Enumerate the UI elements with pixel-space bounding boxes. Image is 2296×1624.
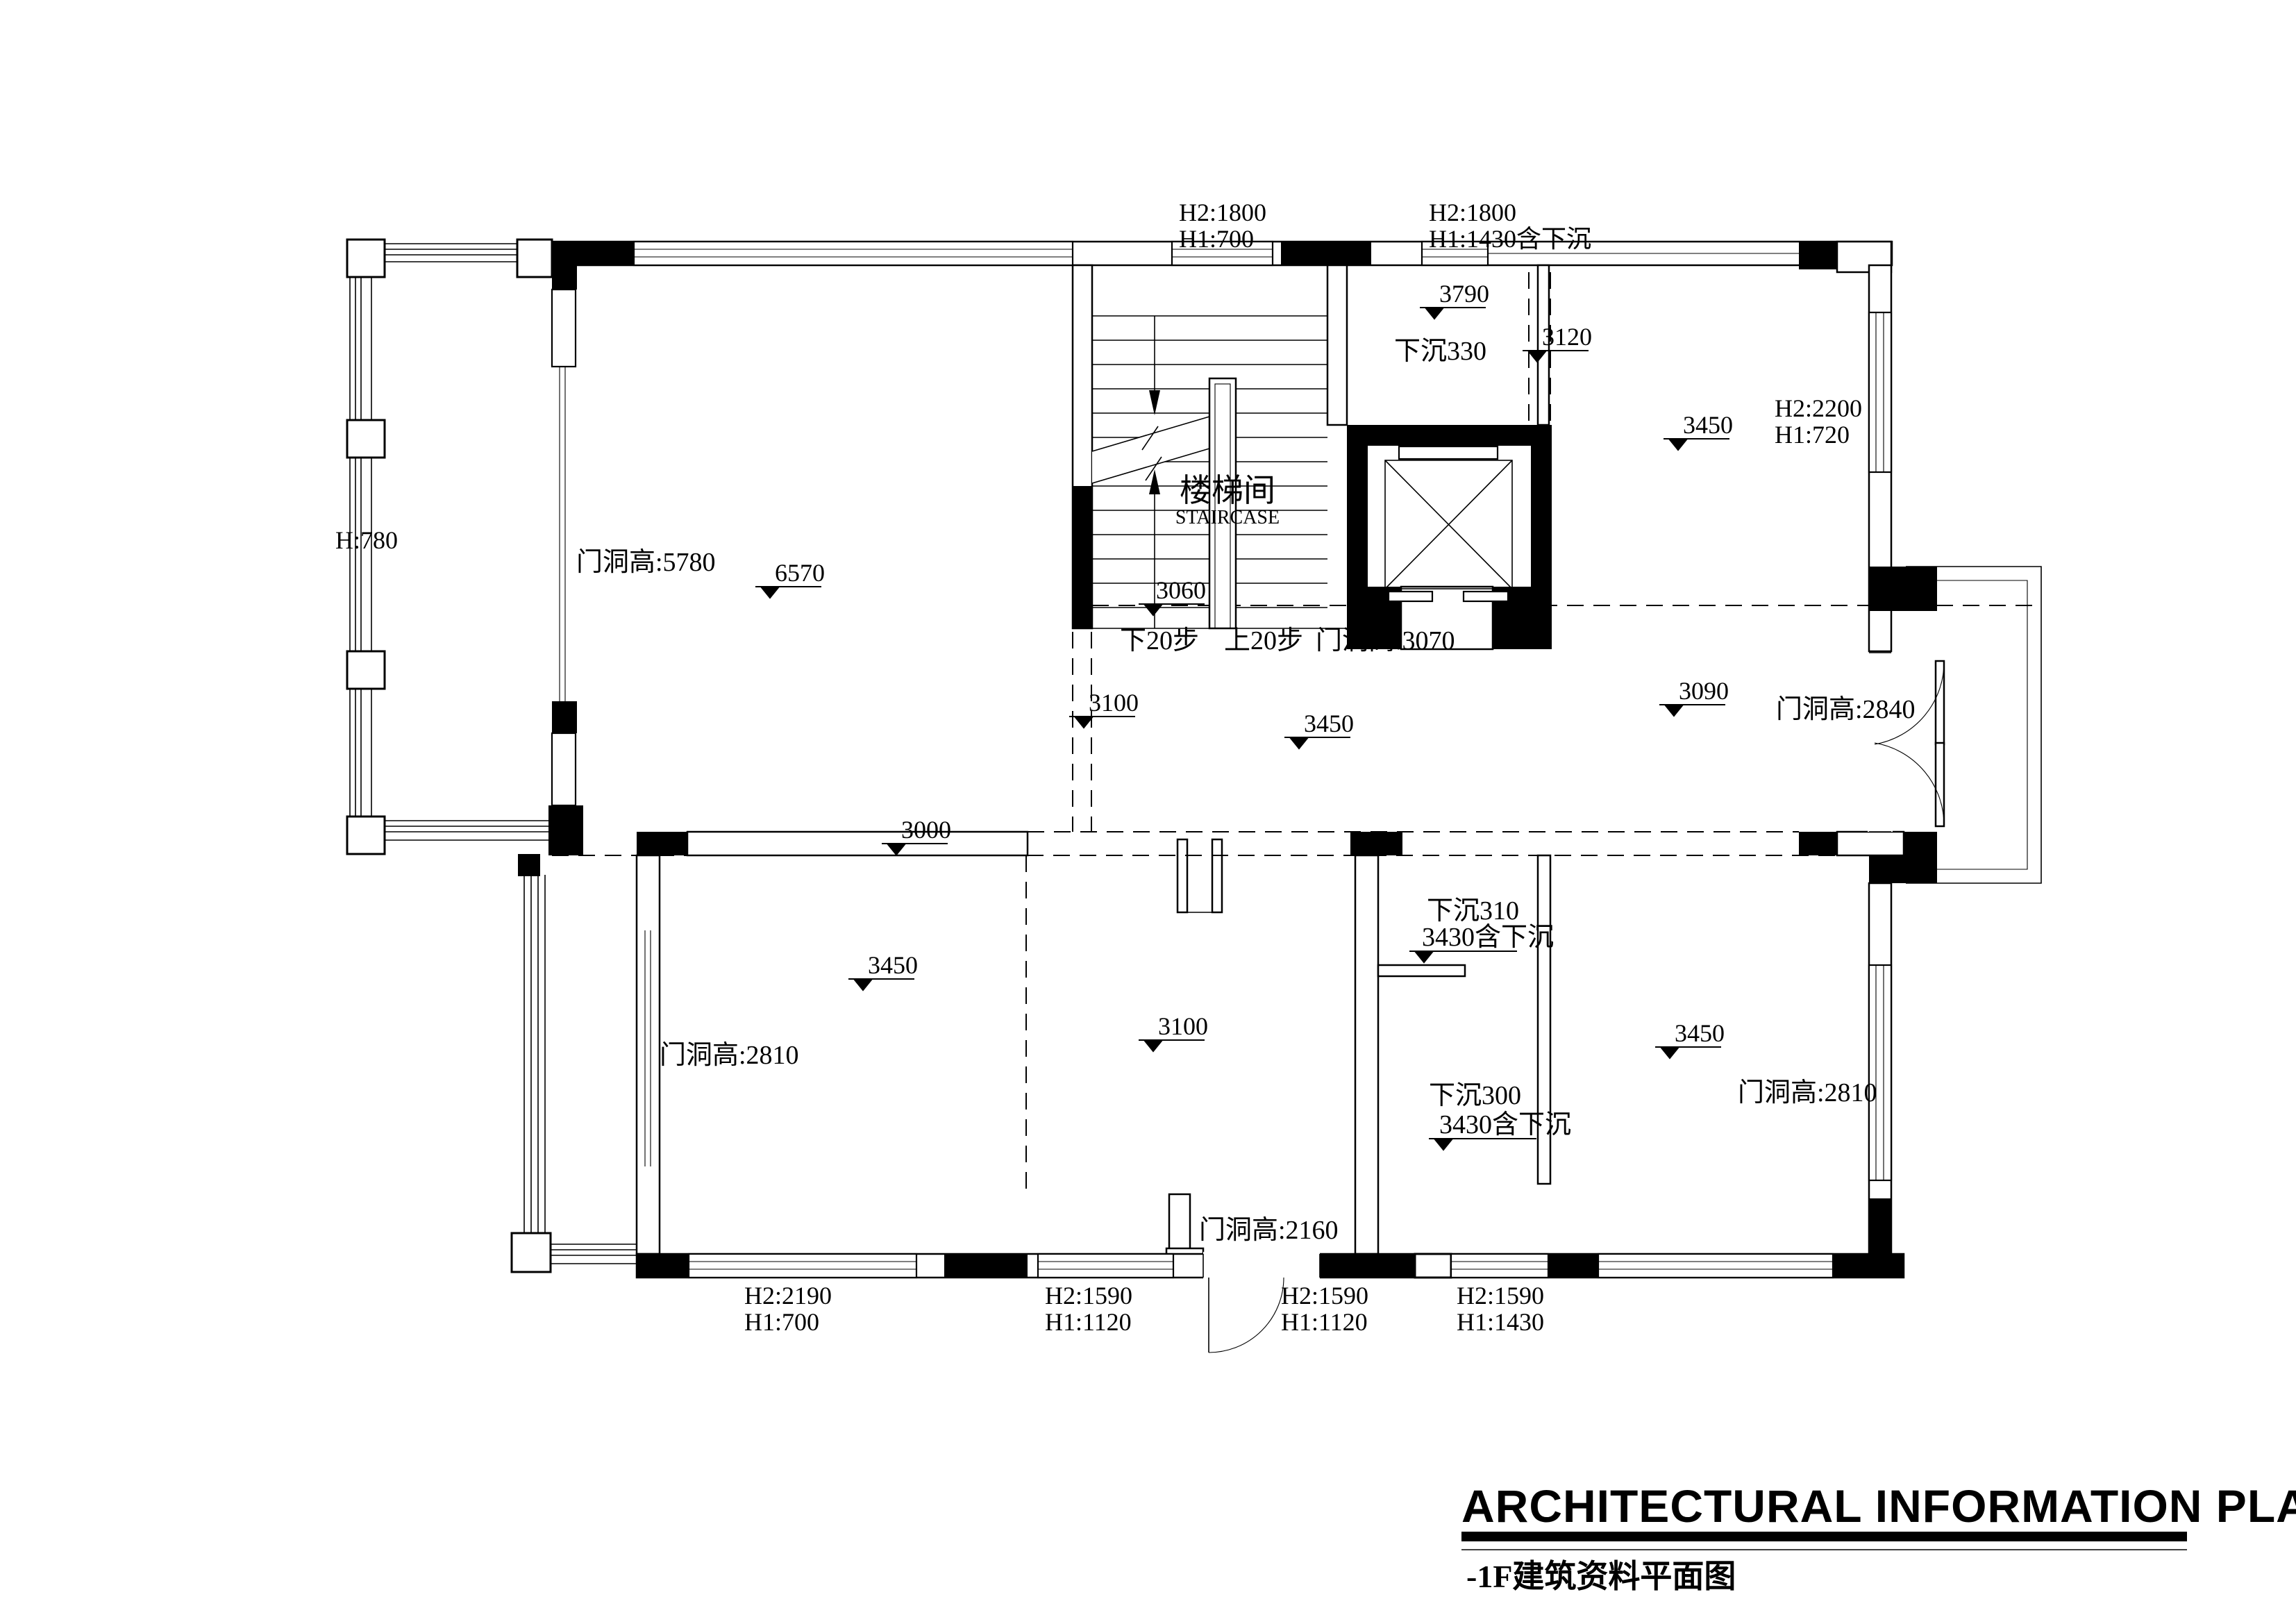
elevation-value: 3790 [1439,280,1489,308]
elevation-value: 3450 [1304,710,1354,737]
window-label: H2:2190 [744,1282,832,1309]
page-title: ARCHITECTURAL INFORMATION PLAN [1461,1480,2296,1532]
column [347,817,385,854]
window-label: H2:1590 [1457,1282,1544,1309]
window-label: H1:720 [1775,421,1850,449]
page-subtitle: -1F建筑资料平面图 [1466,1559,1736,1594]
window-label: H2:2200 [1775,394,1862,422]
doors [1209,661,1944,1353]
elevation-marker: 3100 [1139,1012,1208,1051]
column [347,240,385,277]
window-right-lower [1869,965,1891,1180]
window-label: H1:1120 [1281,1308,1368,1336]
elevation-marker: 3060 [1139,576,1206,615]
elevator [1347,425,1552,649]
elevation-value: 3090 [1679,677,1729,705]
window-label: H2:1800 [1429,199,1516,226]
elevation-value: 3100 [1089,689,1139,717]
walls [548,242,1937,1280]
staircase-name-en: STAIRCASE [1175,507,1280,528]
elevation-value: 3430含下沉 [1439,1110,1571,1139]
door-height-label: 门洞高:2810 [1738,1078,1877,1107]
window-label: H1:700 [1179,225,1254,253]
door-height-label: 门洞高:2810 [660,1041,799,1070]
window-label: H2:1800 [1179,199,1266,226]
sunken-label: 下沉310 [1427,896,1519,926]
sunken-label: 下沉330 [1394,337,1486,366]
elevator-car-icon [1385,460,1512,589]
window-label: H1:1120 [1045,1308,1132,1336]
door-height-label: 门洞高:5780 [576,548,716,577]
window-label: H1:1430 [1457,1308,1544,1336]
floor-plan-canvas: 3790 3120 3450 6570 3060 3100 3450 3090 [0,0,2296,1624]
elevation-value: 3120 [1542,323,1592,351]
elevation-marker: 3790 [1420,280,1489,319]
elevation-value: 3450 [1683,411,1733,439]
window-label: H2:1590 [1045,1282,1132,1309]
stairs-up-label: 上20步 [1224,626,1303,655]
column [347,420,385,458]
elevation-marker: 6570 [755,559,825,598]
elevation-value: 3450 [868,951,918,979]
window-bottom-3 [1451,1254,1548,1278]
windows [634,242,1891,1278]
window-right-upper [1869,312,1891,472]
elevation-marker: 3450 [1284,710,1354,748]
elevation-value: 6570 [775,559,825,587]
elevation-value: 3430含下沉 [1422,923,1554,952]
window-bottom-1 [689,1254,916,1278]
window-label: H2:1590 [1281,1282,1368,1309]
elevation-value: 3100 [1158,1012,1208,1040]
elevation-marker: 3450 [1664,411,1733,450]
railing-height-label: H:780 [335,526,398,554]
elevation-marker: 3100 [1069,689,1139,728]
stairs-down-label: 下20步 [1120,626,1199,655]
window-label: H1:700 [744,1308,819,1336]
stair-arrow-down-icon [1149,316,1160,415]
elevation-value: 3450 [1675,1019,1725,1047]
elevation-value: 3060 [1156,576,1206,604]
balcony-bottom-left [512,854,637,1272]
elevation-value: 3000 [901,816,951,844]
elevation-marker: 3450 [848,951,918,990]
elevation-marker: 3120 [1523,323,1592,362]
column [517,240,552,277]
staircase-name-zh: 楼梯间 [1180,473,1275,508]
bottom-exterior-door [1209,1278,1284,1353]
door-height-label: 门洞高:2160 [1199,1216,1339,1245]
elevation-marker: 3090 [1659,677,1729,716]
column [512,1233,551,1272]
column [347,651,385,689]
door-height-label: 门洞高:2840 [1776,695,1916,724]
staircase [1092,316,1327,628]
elevation-marker: 3450 [1655,1019,1725,1058]
sunken-label: 下沉300 [1429,1081,1521,1110]
elevation-marker: 3430含下沉 [1409,923,1554,962]
window-label: H1:1430含下沉 [1429,225,1591,253]
window-top-left [634,242,1073,265]
door-height-label: 门洞高:3070 [1316,626,1455,655]
elevation-markers: 3790 3120 3450 6570 3060 3100 3450 3090 [755,280,1733,1150]
title-block: ARCHITECTURAL INFORMATION PLAN -1F建筑资料平面… [1461,1480,2296,1594]
column [518,854,540,876]
window-bottom-4 [1598,1254,1833,1278]
title-rule-thick [1461,1532,2187,1541]
floor-plan-page: 3790 3120 3450 6570 3060 3100 3450 3090 [0,0,2296,1624]
window-bottom-2 [1038,1254,1173,1278]
